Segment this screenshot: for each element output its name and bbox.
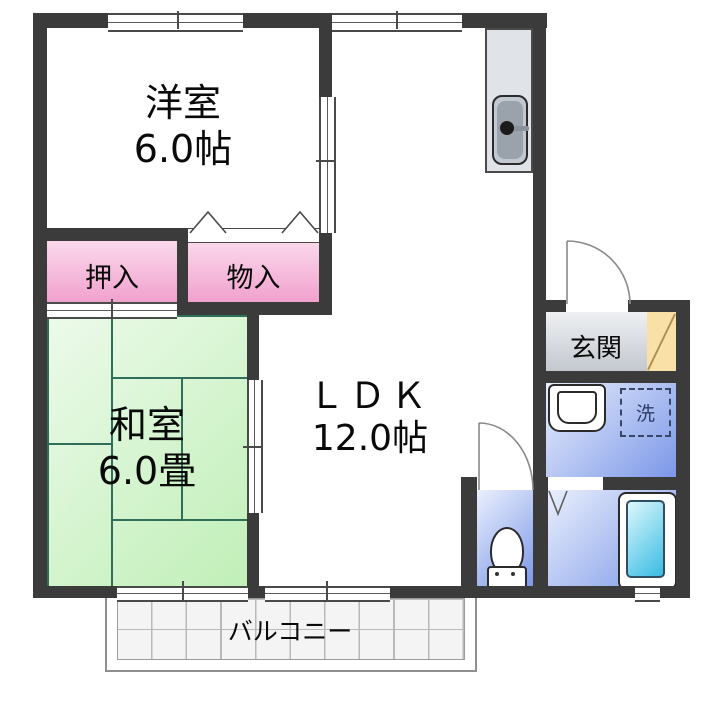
- window: [108, 13, 243, 32]
- shoe-cabinet: [647, 312, 676, 371]
- room-name: 押入: [85, 263, 139, 294]
- wall-segment: [603, 477, 676, 490]
- ldk-label: ＬＤＫ 12.0帖: [259, 376, 481, 460]
- wall-segment: [390, 586, 635, 598]
- room-name: 和室: [47, 402, 247, 448]
- oshiire-sliding-door: [47, 302, 177, 319]
- room-name: 物入: [227, 263, 281, 294]
- room-name: ＬＤＫ: [259, 376, 481, 418]
- bathroom-window: [635, 586, 660, 602]
- wall-segment: [247, 315, 259, 380]
- wall-segment: [533, 477, 548, 490]
- balcony-sliding-window: [265, 586, 390, 602]
- wall-segment: [533, 490, 548, 588]
- entrance-door-arc: [567, 241, 630, 304]
- wall-segment: [177, 302, 332, 315]
- wall-segment: [676, 300, 690, 598]
- room-size: 6.0畳: [47, 448, 247, 494]
- western-room-sliding-door: [319, 97, 336, 233]
- balcony-sliding-window: [117, 586, 248, 602]
- wall-segment: [319, 28, 332, 97]
- washbasin-bowl: [557, 391, 597, 424]
- wall-segment: [243, 13, 332, 28]
- faucet-icon: [500, 121, 514, 135]
- tatami-joint: [111, 377, 247, 379]
- wall-segment: [533, 371, 676, 383]
- wall-segment: [33, 13, 108, 28]
- wall-segment: [248, 586, 265, 598]
- tatami-joint: [111, 519, 247, 521]
- toilet-door-arc: [479, 423, 533, 490]
- western-room-label: 洋室 6.0帖: [47, 80, 319, 172]
- wall-segment: [47, 228, 177, 241]
- toilet-button: [511, 572, 515, 576]
- wall-segment: [461, 477, 477, 598]
- wall-segment: [33, 13, 47, 598]
- floor-plan: 洗: [0, 0, 720, 720]
- wall-segment: [533, 13, 546, 477]
- room-size: 12.0帖: [259, 418, 481, 460]
- japanese-room-label: 和室 6.0畳: [47, 402, 247, 494]
- balcony-label: バルコニー: [117, 612, 463, 648]
- monoire-folding-door: [188, 228, 319, 243]
- window: [332, 13, 462, 32]
- room-name: バルコニー: [228, 617, 353, 646]
- monoire-label: 物入: [188, 256, 319, 295]
- room-name: 玄関: [570, 334, 622, 364]
- toilet-button: [495, 572, 499, 576]
- wall-segment: [546, 300, 566, 312]
- entrance-label: 玄関: [546, 328, 646, 365]
- laundry-label: 洗: [636, 399, 655, 426]
- washing-machine-space: 洗: [620, 388, 671, 437]
- bathtub-inner: [626, 500, 665, 578]
- room-size: 6.0帖: [47, 126, 319, 172]
- oshiire-label: 押入: [47, 256, 177, 295]
- room-name: 洋室: [47, 80, 319, 126]
- wall-segment: [33, 586, 117, 598]
